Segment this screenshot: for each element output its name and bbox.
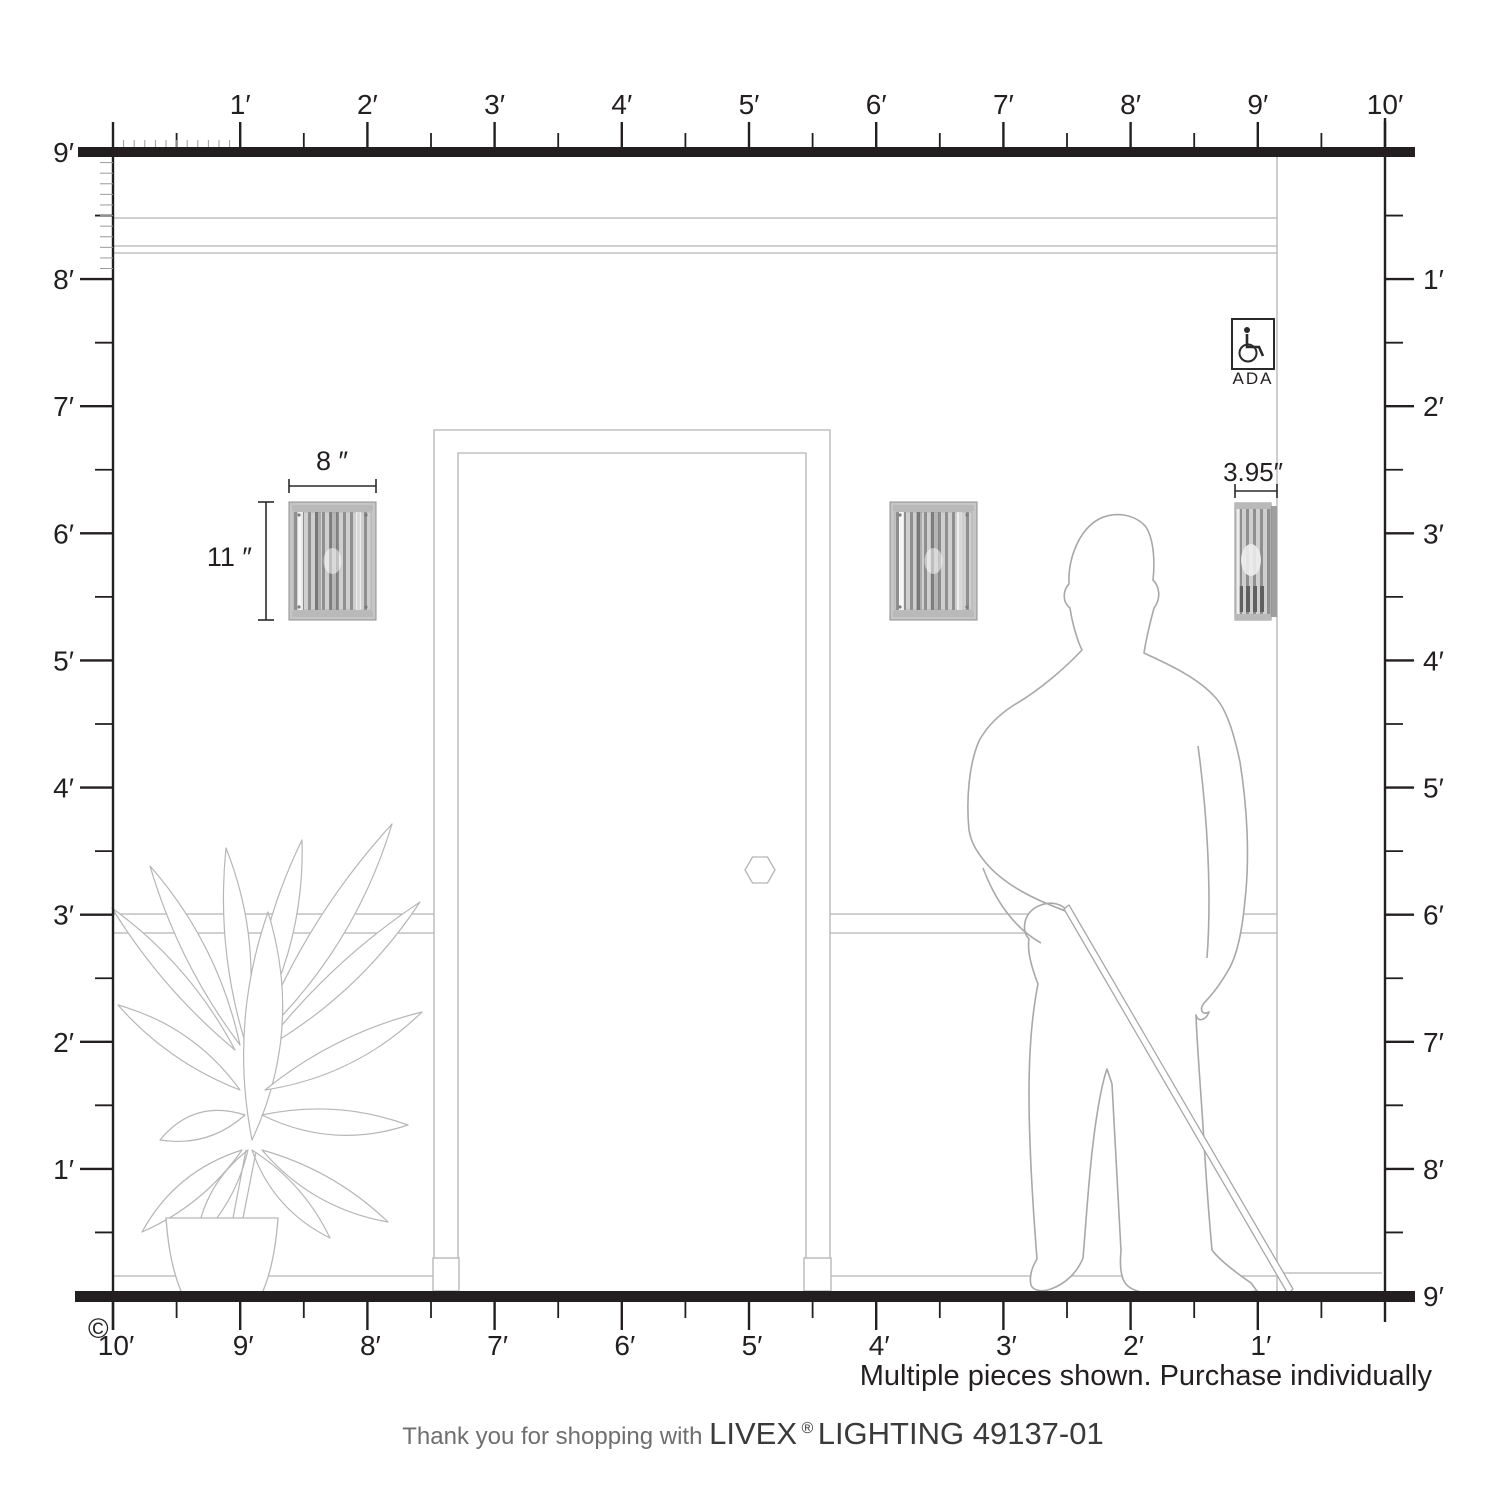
- bottom-ruler-label: 3′: [996, 1330, 1017, 1361]
- sconce-front-middle: [890, 502, 977, 620]
- left-ruler-label: 9′: [53, 137, 74, 168]
- top-ruler-label: 2′: [357, 89, 378, 120]
- plant-leaf: [262, 1109, 408, 1135]
- sconce-screw: [297, 513, 300, 516]
- sconce-highlight: [1237, 509, 1240, 614]
- top-ruler-label: 1′: [230, 89, 251, 120]
- door: [433, 430, 831, 1291]
- sconce-screw: [364, 513, 367, 516]
- sconce-highlight: [298, 512, 303, 610]
- sconce-bulb: [1241, 544, 1261, 576]
- left-ruler-label: 7′: [53, 391, 74, 422]
- plant-leaf: [160, 1110, 245, 1141]
- sconce-bottom-cap: [1235, 614, 1271, 620]
- sconce-dark-bar: [1260, 586, 1264, 612]
- sconce-shadow-rib: [916, 512, 922, 610]
- sconce-highlight: [899, 512, 904, 610]
- right-ruler-label: 1′: [1423, 264, 1444, 295]
- bottom-ruler-label: 2′: [1123, 1330, 1144, 1361]
- right-ruler-label: 5′: [1423, 773, 1444, 804]
- left-ruler-label: 1′: [53, 1154, 74, 1185]
- brand-name: LIVEX: [709, 1416, 797, 1451]
- sconce-screw: [297, 605, 300, 608]
- purchase-note: Multiple pieces shown. Purchase individu…: [860, 1360, 1433, 1392]
- height-dimension-label: 11 ″: [207, 542, 253, 572]
- sconce-front-left: [289, 502, 376, 620]
- bottom-ruler-label: 9′: [233, 1330, 254, 1361]
- sconce-side-right: [1235, 503, 1277, 620]
- sconce-bottom-cap: [893, 611, 974, 617]
- sconce-screw: [898, 605, 901, 608]
- top-ruler-label: 6′: [866, 89, 887, 120]
- diagram-canvas: 8 ″ 11 ″ 3.95″ ADA 1′2′3′4′5′6′7′8′9′10′…: [0, 0, 1500, 1500]
- depth-dimension-label: 3.95″: [1223, 457, 1283, 487]
- dimension-width: 8 ″: [289, 446, 376, 493]
- person-silhouette: [968, 515, 1293, 1294]
- scale-drawing: 8 ″ 11 ″ 3.95″ ADA 1′2′3′4′5′6′7′8′9′10′…: [0, 0, 1500, 1500]
- ada-badge: ADA: [1232, 319, 1274, 388]
- bottom-ruler-label: 8′: [360, 1330, 381, 1361]
- top-ruler-label: 3′: [484, 89, 505, 120]
- top-ruler-label: 8′: [1120, 89, 1141, 120]
- plant-pot: [166, 1218, 278, 1297]
- sconce-top-cap: [292, 505, 373, 511]
- dimension-height: 11 ″: [207, 502, 274, 620]
- sconce-shadow-rib: [315, 512, 321, 610]
- left-ruler-label: 6′: [53, 518, 74, 549]
- left-ruler-label: 5′: [53, 645, 74, 676]
- product-number: LIGHTING 49137-01: [818, 1416, 1104, 1451]
- dimension-depth: 3.95″: [1223, 457, 1283, 498]
- registered-mark: ®: [801, 1420, 813, 1437]
- left-ruler-label: 3′: [53, 900, 74, 931]
- right-ruler-label: 4′: [1423, 645, 1444, 676]
- sconce-back-plate: [1271, 506, 1277, 617]
- bottom-ruler-label: 5′: [742, 1330, 763, 1361]
- bottom-ruler-label: 6′: [614, 1330, 635, 1361]
- sconce-dark-bar: [1246, 586, 1250, 612]
- sconce-dark-bar: [1253, 586, 1257, 612]
- left-ruler-label: 2′: [53, 1027, 74, 1058]
- top-ruler-label: 5′: [739, 89, 760, 120]
- right-ruler-label: 8′: [1423, 1154, 1444, 1185]
- thanks-line: Thank you for shopping with LIVEX ® LIGH…: [402, 1416, 1103, 1451]
- ada-badge-box: [1232, 319, 1274, 369]
- ada-label: ADA: [1233, 369, 1274, 388]
- sconce-bottom-cap: [292, 611, 373, 617]
- thanks-prefix: Thank you for shopping with: [402, 1423, 709, 1450]
- door-knob: [745, 857, 775, 883]
- sconce-top-cap: [893, 505, 974, 511]
- floor-bar: [75, 1291, 1415, 1302]
- bottom-ruler-label: 1′: [1250, 1330, 1271, 1361]
- person-outline: [968, 515, 1257, 1294]
- copyright-mark: ©: [88, 1313, 109, 1344]
- right-ruler-label: 6′: [1423, 900, 1444, 931]
- door-frame-foot-right: [804, 1258, 831, 1291]
- right-ruler-label: 2′: [1423, 391, 1444, 422]
- top-ruler-label: 7′: [993, 89, 1014, 120]
- right-ruler-label: 3′: [1423, 518, 1444, 549]
- bottom-ruler-label: 4′: [869, 1330, 890, 1361]
- right-ruler-label: 7′: [1423, 1027, 1444, 1058]
- top-ruler-label: 10′: [1367, 89, 1403, 120]
- ceiling-bar: [78, 147, 1415, 157]
- door-frame-foot-left: [433, 1258, 459, 1291]
- sconce-bulb-glow: [925, 548, 943, 574]
- sconce-highlight: [957, 512, 962, 610]
- top-ruler-label: 4′: [611, 89, 632, 120]
- sconce-screw: [364, 605, 367, 608]
- width-dimension-label: 8 ″: [316, 446, 349, 476]
- sconce-screw: [965, 513, 968, 516]
- sconce-screw: [898, 513, 901, 516]
- right-ruler-label: 9′: [1423, 1281, 1444, 1312]
- sconce-top-cap: [1235, 503, 1271, 509]
- potted-plant: [112, 824, 422, 1297]
- top-ruler-label: 9′: [1247, 89, 1268, 120]
- left-ruler-label: 8′: [53, 264, 74, 295]
- sconce-highlight: [356, 512, 361, 610]
- sconce-bulb-glow: [324, 548, 342, 574]
- left-ruler-label: 4′: [53, 773, 74, 804]
- sconce-screw: [965, 605, 968, 608]
- bottom-ruler-label: 7′: [487, 1330, 508, 1361]
